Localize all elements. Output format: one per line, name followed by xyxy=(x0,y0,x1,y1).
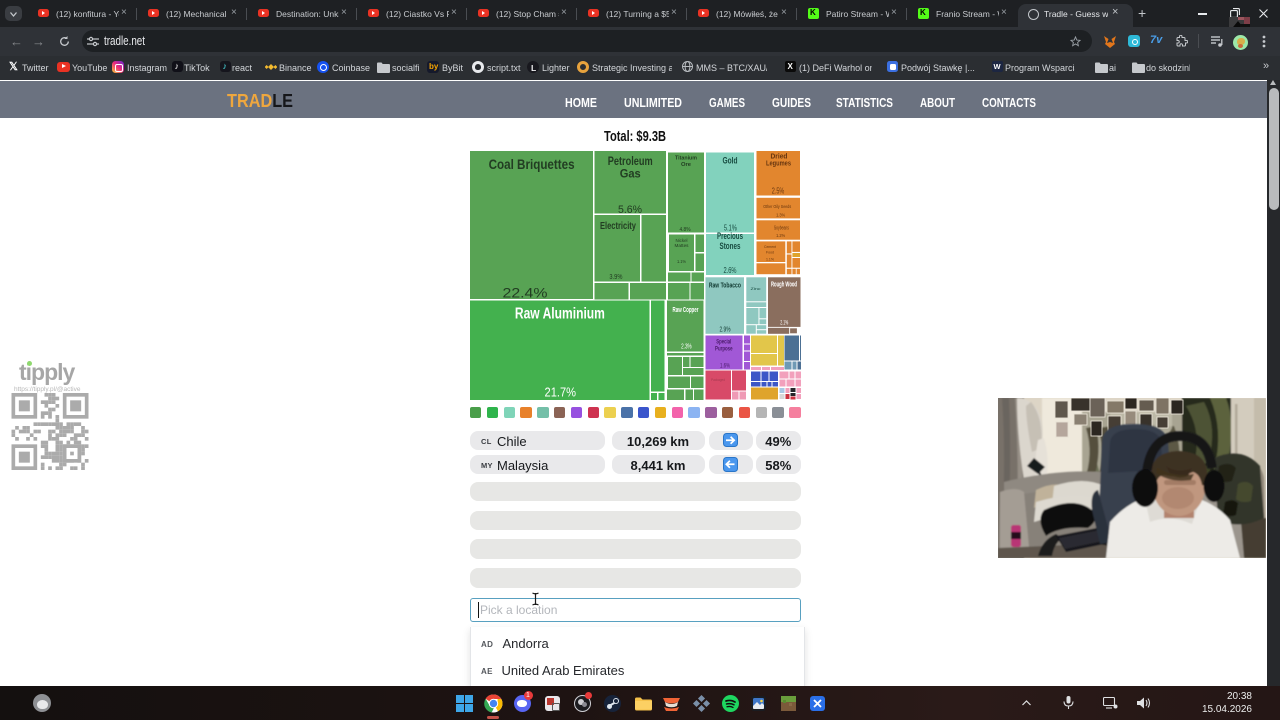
svg-text:TRADLE: TRADLE xyxy=(227,90,293,111)
svg-text:2.1%: 2.1% xyxy=(780,319,788,326)
svg-text:1.2%: 1.2% xyxy=(776,233,785,238)
svg-text:Ore: Ore xyxy=(681,162,692,168)
svg-text:ABOUT: ABOUT xyxy=(920,95,955,110)
svg-text:2.6%: 2.6% xyxy=(724,266,737,275)
svg-text:Other Oily Seeds: Other Oily Seeds xyxy=(763,204,791,210)
svg-text:HOME: HOME xyxy=(565,95,597,110)
svg-text:1.6%: 1.6% xyxy=(720,364,730,370)
svg-text:Purpose: Purpose xyxy=(715,346,733,353)
svg-text:2.5%: 2.5% xyxy=(772,187,785,196)
svg-text:Raw Tobacco: Raw Tobacco xyxy=(709,282,741,289)
svg-text:Food: Food xyxy=(766,250,774,255)
svg-text:Gold: Gold xyxy=(723,156,738,166)
svg-text:Rough Wood: Rough Wood xyxy=(771,282,797,289)
svg-text:Stones: Stones xyxy=(720,241,741,251)
svg-text:Total: $9.3B: Total: $9.3B xyxy=(604,129,666,145)
svg-text:Precious: Precious xyxy=(717,231,743,241)
svg-text:4.8%: 4.8% xyxy=(680,227,691,233)
svg-text:1.3%: 1.3% xyxy=(776,213,785,218)
svg-text:1.1%: 1.1% xyxy=(766,257,774,262)
svg-text:GAMES: GAMES xyxy=(709,95,745,110)
svg-text:2.3%: 2.3% xyxy=(681,344,692,351)
svg-text:21.7%: 21.7% xyxy=(545,385,577,400)
svg-text:Raw Aluminium: Raw Aluminium xyxy=(515,306,605,323)
svg-text:Zinc: Zinc xyxy=(751,286,761,291)
svg-text:3.9%: 3.9% xyxy=(609,272,622,281)
svg-text:Coal Briquettes: Coal Briquettes xyxy=(489,156,575,172)
svg-text:Soybeans: Soybeans xyxy=(774,226,789,232)
svg-text:Gas: Gas xyxy=(620,167,641,181)
svg-text:Electricity: Electricity xyxy=(600,221,636,232)
svg-text:CONTACTS: CONTACTS xyxy=(982,95,1036,110)
svg-text:Mattes: Mattes xyxy=(675,243,689,248)
svg-text:Raw Copper: Raw Copper xyxy=(673,307,699,314)
svg-text:5.6%: 5.6% xyxy=(618,204,642,216)
svg-text:UNLIMITED: UNLIMITED xyxy=(624,95,682,110)
svg-text:Titanium: Titanium xyxy=(675,156,697,162)
svg-text:Packaged: Packaged xyxy=(711,377,725,382)
svg-text:Legumes: Legumes xyxy=(766,159,791,168)
svg-text:STATISTICS: STATISTICS xyxy=(836,95,893,110)
svg-text:GUIDES: GUIDES xyxy=(772,95,811,110)
svg-text:1.1%: 1.1% xyxy=(677,259,686,264)
svg-text:tradle.net: tradle.net xyxy=(104,34,145,48)
svg-text:Cement: Cement xyxy=(764,244,777,249)
svg-text:22.4%: 22.4% xyxy=(503,286,548,301)
svg-text:2.9%: 2.9% xyxy=(720,327,731,334)
